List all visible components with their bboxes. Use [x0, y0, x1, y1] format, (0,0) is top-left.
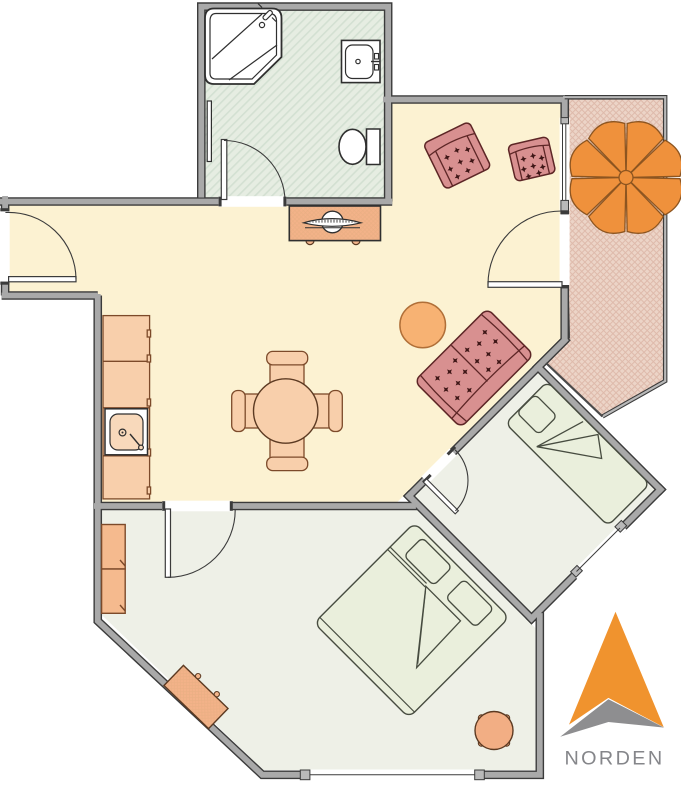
svg-text:NORDEN: NORDEN	[564, 748, 664, 770]
